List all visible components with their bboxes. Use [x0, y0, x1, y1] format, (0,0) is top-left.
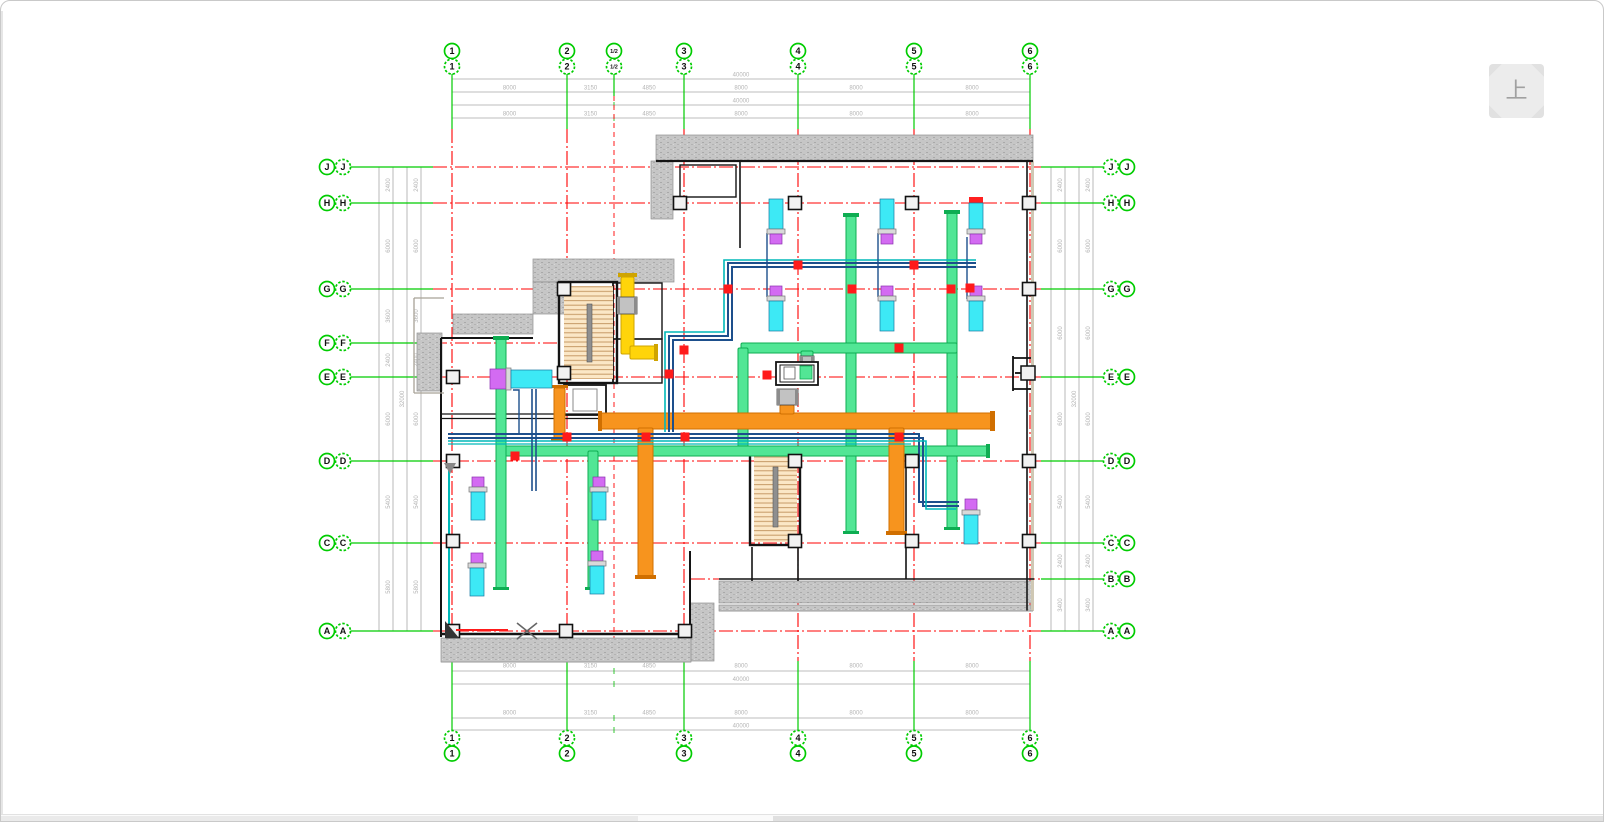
axis-bubble-right-C: C	[1120, 536, 1135, 551]
fan-coil-unit	[967, 286, 985, 331]
svg-text:1: 1	[449, 62, 454, 72]
grid-intersection-marker	[947, 285, 956, 294]
column-symbol	[789, 455, 802, 468]
green-duct-cap	[843, 531, 859, 534]
yellow-duct-cap	[654, 344, 658, 361]
dimension-label: 3400	[1086, 598, 1092, 612]
dimension-label: 8000	[965, 112, 979, 118]
column-symbol	[447, 535, 460, 548]
axis-bubble-right-J-ref: J	[1104, 160, 1119, 175]
column-symbol	[447, 371, 460, 384]
axis-bubble-bottom-4-ref: 4	[791, 731, 806, 746]
axis-bubble-top-1/2-ref: 1/2	[607, 59, 622, 74]
svg-text:A: A	[1108, 626, 1115, 636]
dimension-label: 3600	[386, 309, 392, 323]
svg-text:E: E	[1108, 372, 1114, 382]
duct-damper	[617, 297, 637, 314]
svg-text:4: 4	[795, 733, 800, 743]
grid-intersection-marker	[642, 433, 651, 442]
axis-bubble-right-G-ref: G	[1104, 282, 1119, 297]
column-symbol	[906, 455, 919, 468]
axis-bubble-left-A-ref: A	[336, 624, 351, 639]
column-symbol	[789, 535, 802, 548]
dimension-label: 3150	[584, 86, 598, 92]
dimension-label: 4850	[642, 664, 656, 670]
grid-intersection-marker	[910, 261, 919, 270]
svg-text:5: 5	[911, 733, 916, 743]
axis-bubble-left-F-ref: F	[336, 336, 351, 351]
fan-coil-unit	[767, 199, 785, 244]
svg-text:3: 3	[681, 733, 686, 743]
dimension-label: 8000	[734, 112, 748, 118]
axis-bubble-left-A: A	[320, 624, 335, 639]
dimension-label: 2400	[1058, 554, 1064, 568]
fan-coil-unit	[878, 199, 896, 244]
svg-text:4: 4	[795, 749, 800, 759]
svg-text:2: 2	[564, 46, 569, 56]
axis-bubble-left-H-ref: H	[336, 196, 351, 211]
axis-bubble-top-5: 5	[907, 44, 922, 59]
dimension-label: 40000	[733, 724, 750, 730]
dimension-label: 6000	[386, 239, 392, 253]
dimension-label: 5400	[414, 495, 420, 509]
axis-bubble-right-G: G	[1120, 282, 1135, 297]
svg-text:J: J	[1124, 162, 1129, 172]
dimension-label: 8000	[849, 664, 863, 670]
svg-text:A: A	[340, 626, 347, 636]
column-symbol	[906, 535, 919, 548]
dimension-label: 3150	[584, 664, 598, 670]
yellow-duct-cap	[618, 273, 637, 277]
svg-text:G: G	[323, 284, 330, 294]
svg-text:G: G	[1123, 284, 1130, 294]
svg-text:1: 1	[449, 733, 454, 743]
dimension-label: 5400	[1058, 495, 1064, 509]
axis-bubble-top-6: 6	[1023, 44, 1038, 59]
axis-bubble-left-C-ref: C	[336, 536, 351, 551]
dimension-label: 8000	[965, 664, 979, 670]
svg-text:6: 6	[1027, 46, 1032, 56]
svg-text:A: A	[324, 626, 331, 636]
axis-bubble-left-D-ref: D	[336, 454, 351, 469]
dimension-label: 6000	[414, 412, 420, 426]
dimension-label: 32000	[400, 390, 406, 407]
dimension-label: 6000	[386, 412, 392, 426]
dimension-label: 8000	[503, 664, 517, 670]
orange-duct-cap	[990, 411, 995, 431]
svg-text:J: J	[1108, 162, 1113, 172]
axis-bubble-top-6-ref: 6	[1023, 59, 1038, 74]
wall-hatch	[719, 605, 1031, 611]
orange-duct	[554, 388, 565, 439]
axis-bubble-top-5-ref: 5	[907, 59, 922, 74]
svg-text:G: G	[339, 284, 346, 294]
svg-text:6: 6	[1027, 62, 1032, 72]
fan-coil-unit	[967, 197, 985, 244]
column-symbol	[560, 625, 573, 638]
green-duct-cap	[843, 213, 859, 217]
green-duct	[738, 348, 748, 456]
svg-text:F: F	[324, 338, 330, 348]
fan-coil-unit	[468, 553, 486, 596]
svg-text:D: D	[1108, 456, 1115, 466]
wall-hatch	[533, 259, 674, 282]
axis-bubble-right-B: B	[1120, 572, 1135, 587]
axis-bubble-right-E-ref: E	[1104, 370, 1119, 385]
axis-bubble-left-G-ref: G	[336, 282, 351, 297]
axis-bubble-top-2: 2	[560, 44, 575, 59]
svg-text:5: 5	[911, 749, 916, 759]
axis-bubble-right-B-ref: B	[1104, 572, 1119, 587]
dimension-label: 6000	[1058, 412, 1064, 426]
column-symbol	[1023, 197, 1036, 210]
dimension-label: 40000	[733, 677, 750, 683]
grid-intersection-marker	[966, 284, 975, 293]
horizontal-scrollbar[interactable]	[1, 814, 1603, 821]
svg-text:2: 2	[564, 62, 569, 72]
axis-bubble-top-1-ref: 1	[445, 59, 460, 74]
dimension-label: 8000	[965, 86, 979, 92]
dimension-label: 2400	[386, 353, 392, 367]
grid-intersection-marker	[511, 452, 520, 461]
grid-intersection-marker	[848, 285, 857, 294]
green-duct-cap	[493, 336, 509, 340]
axis-bubble-top-3-ref: 3	[677, 59, 692, 74]
axis-bubble-top-1: 1	[445, 44, 460, 59]
scrollbar-thumb[interactable]	[773, 816, 1603, 821]
green-duct-cap	[944, 210, 960, 214]
dimension-label: 6000	[1058, 239, 1064, 253]
grid-intersection-marker	[763, 371, 772, 380]
up-button[interactable]: 上	[1489, 64, 1544, 118]
stair-rail	[773, 467, 778, 527]
svg-text:1: 1	[449, 749, 454, 759]
axis-bubble-bottom-1: 1	[445, 746, 460, 761]
dimension-label: 40000	[733, 73, 750, 79]
svg-text:1/2: 1/2	[610, 49, 618, 55]
dimension-label: 8000	[734, 711, 748, 717]
svg-text:4: 4	[795, 62, 800, 72]
axis-bubble-bottom-5: 5	[907, 746, 922, 761]
duct-damper	[777, 389, 798, 405]
fan-coil-unit-horizontal	[490, 368, 552, 390]
column-symbol	[679, 625, 692, 638]
axis-bubble-bottom-6: 6	[1023, 746, 1038, 761]
svg-text:C: C	[324, 538, 331, 548]
svg-text:2: 2	[564, 749, 569, 759]
axis-bubble-left-E-ref: E	[336, 370, 351, 385]
grid-intersection-marker	[665, 370, 674, 379]
dimension-label: 8000	[503, 86, 517, 92]
svg-text:C: C	[1108, 538, 1115, 548]
dimension-label: 8000	[849, 711, 863, 717]
axis-bubble-left-C: C	[320, 536, 335, 551]
svg-text:A: A	[1124, 626, 1131, 636]
svg-text:F: F	[340, 338, 346, 348]
fan-coil-unit	[878, 286, 896, 331]
wall-hatch	[453, 314, 533, 334]
column-symbol	[1023, 535, 1036, 548]
svg-text:3: 3	[681, 749, 686, 759]
dimension-label: 2400	[1058, 178, 1064, 192]
orange-duct	[601, 413, 992, 429]
column-symbol	[674, 197, 687, 210]
column-symbol	[1023, 283, 1036, 296]
svg-text:D: D	[340, 456, 347, 466]
green-duct-cap	[986, 444, 990, 458]
dimension-label: 8000	[503, 112, 517, 118]
green-duct-cap	[944, 527, 960, 530]
fcu-branch-pipe	[513, 390, 519, 434]
svg-text:H: H	[1108, 198, 1115, 208]
stair-rail	[587, 304, 592, 362]
dimension-label: 5800	[386, 580, 392, 594]
fan-coil-unit	[588, 551, 606, 594]
svg-text:J: J	[340, 162, 345, 172]
dimension-label: 3150	[584, 711, 598, 717]
dimension-label: 2400	[414, 178, 420, 192]
dimension-label: 6000	[1086, 239, 1092, 253]
column-symbol	[1023, 455, 1036, 468]
column-symbol	[906, 197, 919, 210]
svg-text:1: 1	[449, 46, 454, 56]
svg-text:5: 5	[911, 62, 916, 72]
dimension-label: 3400	[1058, 598, 1064, 612]
dimension-label: 8000	[849, 86, 863, 92]
dimension-label: 8000	[734, 664, 748, 670]
column-symbol	[789, 197, 802, 210]
axis-bubble-right-H: H	[1120, 196, 1135, 211]
axis-bubble-bottom-5-ref: 5	[907, 731, 922, 746]
dimension-label: 2400	[1086, 178, 1092, 192]
svg-text:5: 5	[911, 46, 916, 56]
svg-text:H: H	[340, 198, 347, 208]
orange-duct	[780, 405, 794, 414]
svg-text:G: G	[1107, 284, 1114, 294]
axis-bubble-left-E: E	[320, 370, 335, 385]
column-symbol	[558, 283, 571, 296]
axis-bubble-bottom-1-ref: 1	[445, 731, 460, 746]
svg-text:E: E	[1124, 372, 1130, 382]
dimension-label: 3600	[414, 309, 420, 323]
axis-bubble-left-G: G	[320, 282, 335, 297]
grid-line-layer	[351, 74, 1103, 730]
grid-intersection-marker	[680, 346, 689, 355]
dimension-label: 6000	[1086, 326, 1092, 340]
axis-bubble-left-D: D	[320, 454, 335, 469]
yellow-duct	[630, 346, 656, 359]
axis-bubble-bottom-6-ref: 6	[1023, 731, 1038, 746]
svg-text:H: H	[1124, 198, 1131, 208]
axis-bubble-right-D: D	[1120, 454, 1135, 469]
axis-bubble-right-D-ref: D	[1104, 454, 1119, 469]
yellow-duct	[621, 277, 634, 354]
axis-bubble-top-4-ref: 4	[791, 59, 806, 74]
dimension-label: 5800	[414, 580, 420, 594]
svg-text:B: B	[1108, 574, 1115, 584]
cad-viewer-window: 8000800080008000315031503150315048504850…	[0, 0, 1604, 822]
scrollbar-track-left	[1, 816, 638, 821]
floor-plan-canvas[interactable]: 8000800080008000315031503150315048504850…	[1, 1, 1604, 822]
dimension-label: 6000	[1086, 412, 1092, 426]
axis-bubble-bottom-3-ref: 3	[677, 731, 692, 746]
fan-coil-unit	[590, 477, 608, 520]
elevator-car	[573, 389, 597, 411]
grid-intersection-marker	[681, 433, 690, 442]
svg-text:6: 6	[1027, 733, 1032, 743]
grid-intersection-marker	[895, 344, 904, 353]
svg-text:J: J	[324, 162, 329, 172]
dimension-label: 32000	[1072, 390, 1078, 407]
axis-bubble-top-1/2: 1/2	[607, 44, 622, 59]
axis-bubble-left-J-ref: J	[336, 160, 351, 175]
dimension-label: 8000	[734, 86, 748, 92]
building-layer	[414, 135, 1034, 662]
svg-text:D: D	[324, 456, 331, 466]
green-duct-cap	[493, 587, 509, 590]
up-button-label: 上	[1505, 80, 1527, 102]
grid-intersection-marker	[895, 433, 904, 442]
wall-hatch	[651, 161, 673, 219]
axis-bubble-bottom-2: 2	[560, 746, 575, 761]
axis-bubble-top-2-ref: 2	[560, 59, 575, 74]
axis-bubble-top-4: 4	[791, 44, 806, 59]
axis-bubble-left-H: H	[320, 196, 335, 211]
dimension-label: 40000	[733, 99, 750, 105]
svg-text:1/2: 1/2	[610, 65, 618, 71]
dimension-label: 4850	[642, 711, 656, 717]
grid-intersection-marker	[563, 433, 572, 442]
axis-bubble-right-J: J	[1120, 160, 1135, 175]
dimension-label: 4850	[642, 86, 656, 92]
svg-text:2: 2	[564, 733, 569, 743]
axis-bubble-right-A-ref: A	[1104, 624, 1119, 639]
orange-duct	[638, 428, 653, 577]
svg-text:E: E	[324, 372, 330, 382]
dimension-label: 8000	[965, 711, 979, 717]
dimension-label: 2400	[386, 178, 392, 192]
grid-intersection-marker	[724, 285, 733, 294]
orange-duct-cap	[886, 531, 907, 535]
svg-text:6: 6	[1027, 749, 1032, 759]
dimension-label: 4850	[642, 112, 656, 118]
dimension-label: 8000	[849, 112, 863, 118]
wall-hatch	[417, 333, 442, 391]
axis-bubble-bottom-4: 4	[791, 746, 806, 761]
axis-bubble-right-C-ref: C	[1104, 536, 1119, 551]
svg-text:B: B	[1124, 574, 1131, 584]
wall-hatch	[719, 581, 1033, 603]
dimension-label: 5400	[386, 495, 392, 509]
wall-hatch	[656, 135, 1033, 161]
svg-text:H: H	[324, 198, 331, 208]
orange-duct-cap	[635, 575, 656, 579]
dimension-label: 6000	[414, 239, 420, 253]
orange-duct-cap	[598, 411, 602, 431]
dimension-label: 6000	[1058, 326, 1064, 340]
fan-coil-unit	[767, 286, 785, 331]
fan-coil-unit	[469, 477, 487, 520]
dimension-label: 8000	[503, 711, 517, 717]
column-symbol	[558, 367, 571, 380]
svg-text:E: E	[340, 372, 346, 382]
svg-text:3: 3	[681, 46, 686, 56]
axis-bubble-right-H-ref: H	[1104, 196, 1119, 211]
svg-text:3: 3	[681, 62, 686, 72]
axis-bubble-top-3: 3	[677, 44, 692, 59]
svg-text:D: D	[1124, 456, 1131, 466]
axis-bubble-left-F: F	[320, 336, 335, 351]
axis-bubble-right-E: E	[1120, 370, 1135, 385]
wall-hatch	[690, 603, 714, 661]
ahu-unit	[776, 362, 818, 385]
grid-intersection-marker	[794, 261, 803, 270]
dimension-label: 5400	[1086, 495, 1092, 509]
svg-text:4: 4	[795, 46, 800, 56]
axis-bubble-left-J: J	[320, 160, 335, 175]
axis-bubble-right-A: A	[1120, 624, 1135, 639]
wall-hatch	[441, 638, 691, 662]
dimension-label: 3150	[584, 112, 598, 118]
door-symbol	[444, 463, 456, 474]
axis-bubble-bottom-3: 3	[677, 746, 692, 761]
svg-text:C: C	[340, 538, 347, 548]
green-duct	[741, 343, 957, 353]
fan-coil-unit	[962, 499, 980, 544]
dimension-label: 2400	[1086, 554, 1092, 568]
axis-bubble-bottom-2-ref: 2	[560, 731, 575, 746]
room-wall	[680, 165, 736, 197]
svg-text:C: C	[1124, 538, 1131, 548]
orange-duct-cap	[551, 385, 568, 388]
